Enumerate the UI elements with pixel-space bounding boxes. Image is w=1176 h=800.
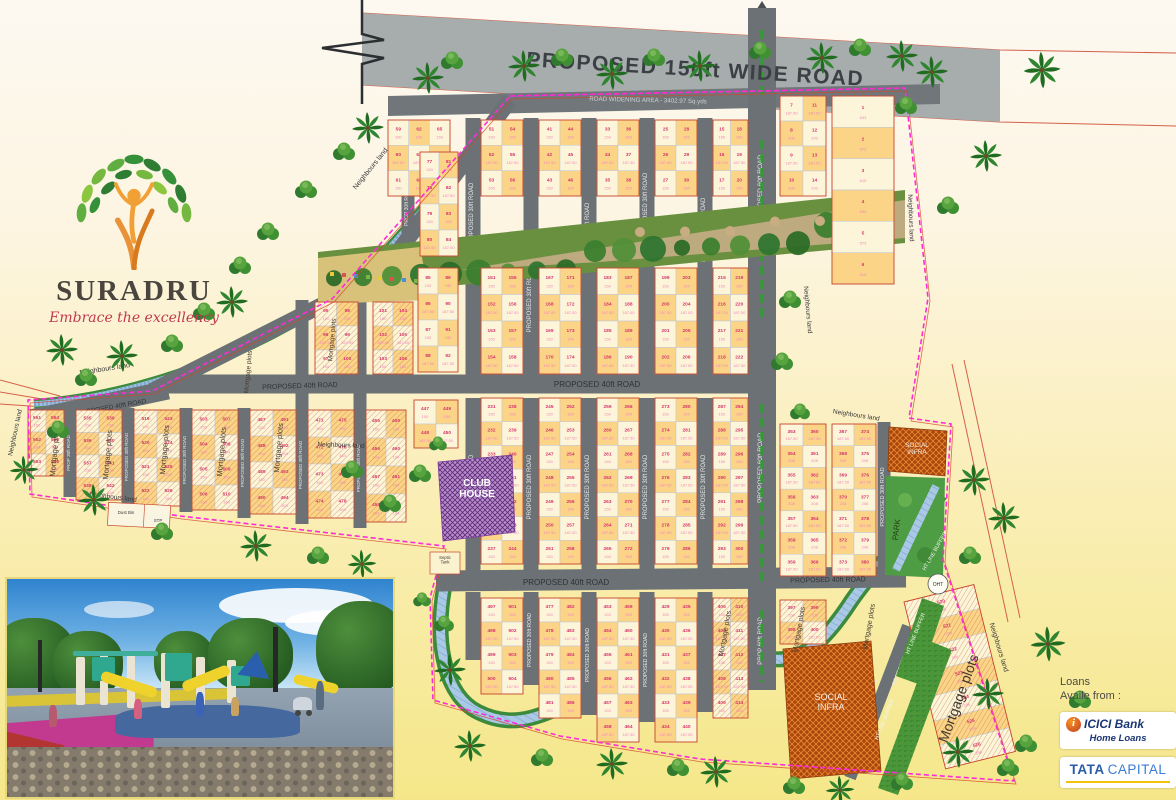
plot-value: 150 <box>546 337 553 342</box>
plot-number: 369 <box>839 473 847 479</box>
plot-number: 456 <box>603 676 611 682</box>
plot-cell <box>539 348 560 375</box>
plot-number: 46 <box>568 177 574 183</box>
plot-value: 150 <box>567 459 574 464</box>
plot-number: 378 <box>861 516 869 522</box>
plot-cell <box>481 321 502 348</box>
plot-number: 438 <box>682 676 690 682</box>
plot-number: 269 <box>624 475 632 481</box>
plot-value: 150 <box>683 506 690 511</box>
plot-cell <box>539 171 560 196</box>
plot-number: 455 <box>603 652 611 658</box>
plot-number: 274 <box>661 428 669 434</box>
plot-value: 150 <box>546 459 553 464</box>
plot-value: 150 <box>683 708 690 713</box>
plot-number: 188 <box>624 302 632 308</box>
plot-number: 169 <box>545 328 553 334</box>
plot-cell <box>597 171 618 196</box>
plot-number: 87 <box>425 327 431 333</box>
plot-number: 480 <box>545 676 553 682</box>
dust_bin-label: Dust Bin <box>118 510 135 515</box>
plot-value: 187.50 <box>659 732 672 737</box>
plot-number: 59 <box>396 127 402 133</box>
plot-number: 362 <box>810 473 818 479</box>
plot-value: 208 <box>840 458 847 463</box>
plot-number: 453 <box>603 604 611 610</box>
plot-cell <box>832 127 894 158</box>
plot-number: 286 <box>682 546 690 552</box>
plot-block: 101150102187.50103150104150105187.501061… <box>373 302 413 374</box>
plot-number: 84 <box>446 237 452 243</box>
plot-number: 267 <box>624 428 632 434</box>
plot-value: 187.50 <box>543 160 556 165</box>
plot-value: 187.50 <box>601 636 614 641</box>
plot-value: 150 <box>683 135 690 140</box>
stroller-wheel <box>306 710 312 716</box>
plot-value: 200 <box>788 136 795 141</box>
plot-value: 150 <box>625 506 632 511</box>
plot-number: 290 <box>718 475 726 481</box>
plot-value: 187.50 <box>442 309 455 314</box>
plot-value: 187.50 <box>808 566 821 571</box>
plot-cell <box>731 295 749 322</box>
plot-value: 187.50 <box>659 684 672 689</box>
strip-play-dot <box>330 272 334 276</box>
plot-cell <box>713 295 731 322</box>
person-figure <box>231 697 239 717</box>
plot-number: 37 <box>626 152 632 158</box>
plot-value: 187.50 <box>733 363 746 368</box>
plot-number: 357 <box>787 516 795 522</box>
plot-cell <box>560 171 581 196</box>
plot-number: 355 <box>787 473 795 479</box>
plot-block: 3315034187.50351503615037187.5038150 <box>597 120 639 196</box>
plot-number: 360 <box>810 429 818 435</box>
plot-number: 293 <box>718 546 726 552</box>
plot-number: 88 <box>425 353 431 359</box>
plot-number: 268 <box>624 451 632 457</box>
plot-value: 150 <box>422 414 429 419</box>
palm-tree-icon <box>970 140 1002 172</box>
plot-value: 150 <box>567 506 574 511</box>
strip-tree <box>612 238 636 262</box>
tree-logo-icon <box>59 146 209 270</box>
r30-label: PROPOSED 30ft ROAD <box>585 628 591 682</box>
plot-number: 260 <box>603 428 611 434</box>
lamppost <box>273 627 277 692</box>
plot-number: 291 <box>718 499 726 505</box>
plot-value: 150 <box>488 337 495 342</box>
plot-value: 150 <box>683 337 690 342</box>
plot-number: 361 <box>810 451 818 457</box>
plot-number: 275 <box>661 451 669 457</box>
r30-label: PROPOSED 30ft ROAD <box>527 454 533 519</box>
plot-number: 79 <box>427 211 433 217</box>
plot-value: 150 <box>718 506 725 511</box>
plot-cell <box>481 295 502 322</box>
plot-number: 221 <box>735 328 743 334</box>
plot-number: 449 <box>443 406 451 412</box>
plot-number: 365 <box>810 538 818 544</box>
plot-value: 150 <box>444 414 451 419</box>
plot-block: 9515096187.50971509815099187.50100150 <box>315 302 358 374</box>
plot-number: 86 <box>425 301 431 307</box>
plot-number: 60 <box>396 152 402 158</box>
plot-number: 20 <box>737 177 743 183</box>
plot-cell <box>502 120 523 145</box>
plot-number: 479 <box>545 652 553 658</box>
plot-value: 150 <box>625 612 632 617</box>
plot-number: 431 <box>661 652 669 658</box>
plot-cell <box>597 348 618 375</box>
plot-cell <box>832 190 894 221</box>
plot-value: 200 <box>811 186 818 191</box>
club_house-label: CLUBHOUSE <box>459 478 495 500</box>
strip-plaza-dot <box>680 227 690 237</box>
social_infra-label: SOCIALINFRA <box>814 692 847 712</box>
plot-cell <box>780 171 803 196</box>
plot-number: 61 <box>396 177 402 183</box>
strip-plaza-dot <box>770 217 780 227</box>
plot-cell <box>655 295 676 322</box>
plot-block: 273150274187.50275150276187.502771502781… <box>655 398 697 564</box>
plot-value: 187.50 <box>506 636 519 641</box>
plot-number: 239 <box>508 428 516 434</box>
plot-value: 150 <box>718 412 725 417</box>
plot-number: 448 <box>421 430 429 436</box>
plot-value: 187.50 <box>622 530 635 535</box>
plot-number: 155 <box>508 275 516 281</box>
plot-value: 187.50 <box>506 684 519 689</box>
plot-value: 150 <box>683 185 690 190</box>
r30-label: PROPOSED 30ft ROAD <box>585 454 591 519</box>
plot-number: 11 <box>812 103 817 109</box>
mortgage-hatch <box>192 410 238 510</box>
plot-number: 288 <box>718 428 726 434</box>
plot-number: 262 <box>603 475 611 481</box>
plot-number: 447 <box>421 406 429 412</box>
plot-number: 295 <box>735 428 743 434</box>
plot-number: 204 <box>682 302 690 308</box>
plot-value: 150 <box>736 412 743 417</box>
plot-cell <box>481 348 502 375</box>
plot-value: 150 <box>683 612 690 617</box>
plot-cell <box>731 120 749 145</box>
plot-number: 231 <box>487 404 495 410</box>
plot-value: 150 <box>625 337 632 342</box>
plot-value: 150 <box>425 283 432 288</box>
plot-value: 187.50 <box>859 436 872 441</box>
plot-number: 5 <box>862 230 865 236</box>
plot-value: 187.50 <box>564 483 577 488</box>
plot-number: 56 <box>510 177 516 183</box>
plot-cell <box>560 295 581 322</box>
plot-cell <box>597 268 618 295</box>
plot-number: 376 <box>861 473 869 479</box>
capital-wordmark: CAPITAL <box>1108 762 1167 777</box>
plot-number: 502 <box>508 628 516 634</box>
plot-number: 358 <box>787 538 795 544</box>
plot-number: 42 <box>547 152 553 158</box>
plot-number: 265 <box>603 546 611 552</box>
plot-value: 150 <box>625 135 632 140</box>
plot-number: 271 <box>624 523 632 529</box>
plot-value: 187.50 <box>859 566 872 571</box>
plot-number: 15 <box>719 127 725 133</box>
plot-number: 45 <box>568 152 574 158</box>
plot-value: 187.50 <box>485 684 498 689</box>
loans-heading: Loans <box>1060 676 1176 690</box>
plot-value: 150 <box>426 219 433 224</box>
palm-tree-icon <box>826 776 855 800</box>
plot-value: 187.50 <box>564 435 577 440</box>
strip-play-dot <box>402 278 406 282</box>
bush-icon <box>1015 735 1037 753</box>
plot-cell <box>655 171 676 196</box>
plot-value: 208 <box>811 501 818 506</box>
plot-number: 363 <box>810 494 818 500</box>
plot-value: 187.50 <box>419 438 432 443</box>
plot-value: 187.50 <box>859 479 872 484</box>
brand-tagline: Embrace the excellency <box>36 310 232 326</box>
plot-number: 277 <box>661 499 669 505</box>
plot-value: 150 <box>488 612 495 617</box>
plot-value: 150 <box>604 412 611 417</box>
plot-block: 4115042187.50431504415045187.5046150 <box>539 120 581 196</box>
plot-cell <box>713 171 731 196</box>
plot-value: 150 <box>488 284 495 289</box>
plot-number: 273 <box>661 404 669 410</box>
strip-tree <box>730 235 750 255</box>
strip-plaza-dot <box>815 216 825 226</box>
plot-number: 34 <box>605 152 611 158</box>
plot-number: 16 <box>719 152 725 158</box>
plot-cell <box>502 171 523 196</box>
plot-value: 573 <box>860 241 867 246</box>
palm-tree-icon <box>454 730 486 762</box>
plot-number: 270 <box>624 499 632 505</box>
plot-value: 150 <box>736 284 743 289</box>
plot-number: 375 <box>861 451 869 457</box>
plot-value: 187.50 <box>680 363 693 368</box>
mortgage-hatch <box>76 410 122 500</box>
tata-wordmark: TATA <box>1070 762 1105 777</box>
strip-plaza-dot <box>635 227 645 237</box>
plot-value: 150 <box>546 612 553 617</box>
plot-number: 255 <box>566 475 574 481</box>
plot-value: 208 <box>811 458 818 463</box>
plot-number: 8 <box>790 128 793 134</box>
plot-value: 200 <box>811 136 818 141</box>
plot-number: 27 <box>663 177 669 183</box>
plot-number: 62 <box>416 127 422 133</box>
plot-value: 150 <box>736 135 743 140</box>
plot-number: 257 <box>566 523 574 529</box>
r30-label: PROPOSED 30ft ROAD <box>701 454 707 519</box>
plot-cell <box>618 268 639 295</box>
plot-number: 77 <box>427 159 433 165</box>
bush-icon <box>413 592 431 606</box>
icici-bank-card: i ICICI Bank Home Loans <box>1060 712 1176 750</box>
plot-number: 53 <box>489 177 495 183</box>
plot-value: 187.50 <box>680 435 693 440</box>
plot-value: 150 <box>604 185 611 190</box>
plot-cell <box>731 145 749 170</box>
plot-value: 187.50 <box>622 483 635 488</box>
plot-cell <box>676 171 697 196</box>
plot-value: 187.50 <box>543 483 556 488</box>
plot-value: 150 <box>604 459 611 464</box>
plot-cell <box>731 268 749 295</box>
plot-cell <box>780 96 803 121</box>
plot-value: 150 <box>546 554 553 559</box>
plot-value: 150 <box>662 506 669 511</box>
plot-value: 150 <box>604 135 611 140</box>
plot-value: 187.50 <box>785 111 798 116</box>
plot-number: 36 <box>626 127 632 133</box>
plot-number: 354 <box>787 451 795 457</box>
plot-number: 258 <box>566 546 574 552</box>
strip-play-dot <box>414 279 418 283</box>
plot-cell <box>803 171 826 196</box>
plot-number: 460 <box>624 628 632 634</box>
plot-number: 189 <box>624 328 632 334</box>
plot-block: 215150216187.50217150218187.502191502201… <box>713 268 748 374</box>
plot-number: 372 <box>839 538 847 544</box>
plot-number: 90 <box>445 301 451 307</box>
plot-value: 187.50 <box>733 483 746 488</box>
plot-block: 2515026187.50271502815029187.5030150 <box>655 120 697 196</box>
plot-number: 298 <box>735 499 743 505</box>
plot-block: 8515086187.508715088187.508915090187.509… <box>418 268 458 372</box>
plot-cell <box>438 346 458 372</box>
brand-logo: SURADRU Embrace the excellency <box>36 146 232 326</box>
plot-number: 278 <box>661 523 669 529</box>
plot-number: 14 <box>812 178 818 184</box>
plot-cell <box>388 171 409 196</box>
plot-cell <box>420 204 439 230</box>
plot-value: 150 <box>604 612 611 617</box>
plot-number: 215 <box>718 275 726 281</box>
plot-value: 187.50 <box>659 636 672 641</box>
plot-value: 208 <box>840 545 847 550</box>
neighbours-label: Neighbours land <box>906 194 915 242</box>
plot-number: 284 <box>682 499 690 505</box>
plot-cell <box>429 120 450 145</box>
plot-number: 217 <box>718 328 726 334</box>
plot-value: 150 <box>604 284 611 289</box>
plot-value: 150 <box>567 708 574 713</box>
plot-number: 439 <box>682 700 690 706</box>
bush-icon <box>937 197 959 215</box>
plot-block: 259150260187.50261150262187.502631502641… <box>597 398 639 564</box>
plot-value: 187.50 <box>808 161 821 166</box>
palm-tree-icon <box>348 550 377 579</box>
plot-cell <box>481 268 502 295</box>
plot-block: 151150152187.50153150154187.501551501561… <box>481 268 523 374</box>
plot-value: 187.50 <box>564 363 577 368</box>
plot-block: 167150168187.50169150170187.501711501721… <box>539 268 581 374</box>
plot-value: 150 <box>445 219 452 224</box>
plot-number: 429 <box>661 604 669 610</box>
plot-value: 187.50 <box>423 245 436 250</box>
plot-value: 150 <box>509 612 516 617</box>
plot-cell <box>676 268 697 295</box>
plot-value: 150 <box>718 459 725 464</box>
palm-tree-icon <box>958 464 990 496</box>
plot-number: 366 <box>810 559 818 565</box>
plot-value: 208 <box>788 545 795 550</box>
plot-cell <box>597 295 618 322</box>
plot-value: 208 <box>788 501 795 506</box>
stroller <box>293 697 312 710</box>
plot-number: 272 <box>624 546 632 552</box>
plot-value: 150 <box>604 337 611 342</box>
plot-number: 436 <box>682 628 690 634</box>
plot-number: 282 <box>682 451 690 457</box>
plot-cell <box>832 159 894 190</box>
plot-cell <box>481 120 502 145</box>
plot-cell <box>481 145 502 170</box>
plot-value: 187.50 <box>485 310 498 315</box>
plot-number: 6 <box>862 262 865 268</box>
r30-label: PROPOSED 30ft ROAD <box>182 435 187 484</box>
plot-block: 477150478187.50479150480187.504811504821… <box>539 598 581 718</box>
plot-value: 150 <box>736 554 743 559</box>
plot-number: 219 <box>735 275 743 281</box>
plot-value: 187.50 <box>733 160 746 165</box>
social_infra-label: SOCIALINFRA <box>905 442 929 456</box>
plot-number: 91 <box>445 327 451 333</box>
plot-value: 187.50 <box>543 363 556 368</box>
plot-value: 187.50 <box>601 684 614 689</box>
plot-value: 187.50 <box>622 435 635 440</box>
plot-value: 187.50 <box>392 160 405 165</box>
plot-value: 187.50 <box>601 363 614 368</box>
plot-value: 187.50 <box>716 483 729 488</box>
plot-number: 244 <box>508 546 516 552</box>
plot-value: 150 <box>509 135 516 140</box>
plot-value: 187.50 <box>680 483 693 488</box>
plot-value: 187.50 <box>785 436 798 441</box>
bush-icon <box>959 547 981 565</box>
r30-label: PROPOSED 30ft ROAD <box>298 440 303 489</box>
bush-icon <box>997 759 1019 777</box>
strip-play-dot <box>342 273 346 277</box>
plot-cell <box>832 96 894 127</box>
plot-value: 187.50 <box>837 566 850 571</box>
plot-value: 615 <box>860 272 867 277</box>
plot-value: 187.50 <box>716 160 729 165</box>
plot-value: 150 <box>567 185 574 190</box>
bush-icon <box>790 403 810 419</box>
plot-number: 367 <box>839 429 847 435</box>
plot-number: 380 <box>861 559 869 565</box>
bush-icon <box>161 335 183 353</box>
neighbours-label: Neighbours land <box>832 408 880 422</box>
plot-block: 183150184187.50185150186187.501871501881… <box>597 268 639 374</box>
plot-value: 187.50 <box>622 363 635 368</box>
plot-value: 187.50 <box>485 435 498 440</box>
plot-value: 187.50 <box>506 310 519 315</box>
plot-value: 187.50 <box>659 483 672 488</box>
plot-value: 187.50 <box>785 566 798 571</box>
plot-cell <box>539 321 560 348</box>
plot-value: 150 <box>546 506 553 511</box>
plot-value: 150 <box>736 506 743 511</box>
plot-value: 187.50 <box>564 530 577 535</box>
bush-icon <box>409 465 431 483</box>
